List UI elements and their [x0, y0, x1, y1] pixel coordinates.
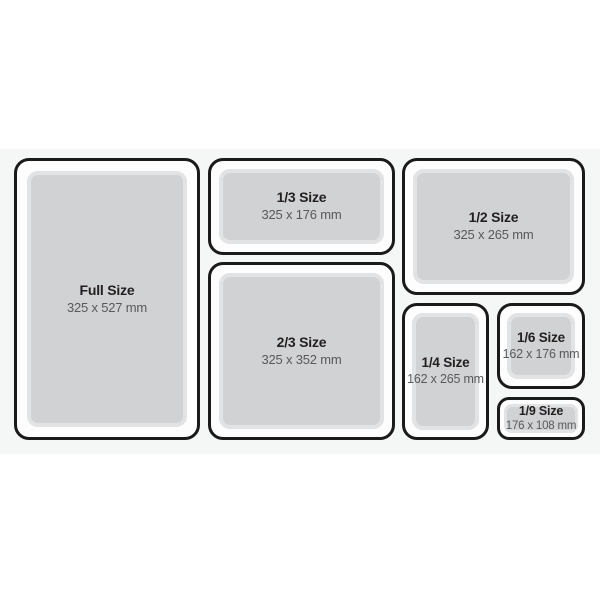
pan-tray-two-thirds-size	[219, 273, 384, 429]
pan-panel-one-quarter-size: 1/4 Size 162 x 265 mm	[402, 303, 489, 440]
pan-tray-one-ninth-size	[504, 404, 578, 433]
pan-panel-one-ninth-size: 1/9 Size 176 x 108 mm	[497, 397, 585, 440]
pan-panel-one-third-size: 1/3 Size 325 x 176 mm	[208, 158, 395, 255]
pan-tray-one-sixth-size	[507, 313, 575, 379]
pan-tray-one-third-size	[219, 169, 384, 244]
pan-panel-two-thirds-size: 2/3 Size 325 x 352 mm	[208, 262, 395, 440]
pan-tray-one-quarter-size	[412, 313, 479, 430]
gastronorm-pan-size-chart: Full Size 325 x 527 mm 1/3 Size 325 x 17…	[0, 0, 600, 600]
pan-panel-one-half-size: 1/2 Size 325 x 265 mm	[402, 158, 585, 295]
pan-tray-full-size	[27, 171, 187, 427]
pan-tray-one-half-size	[413, 169, 574, 284]
pan-panel-full-size: Full Size 325 x 527 mm	[14, 158, 200, 440]
pan-panel-one-sixth-size: 1/6 Size 162 x 176 mm	[497, 303, 585, 389]
